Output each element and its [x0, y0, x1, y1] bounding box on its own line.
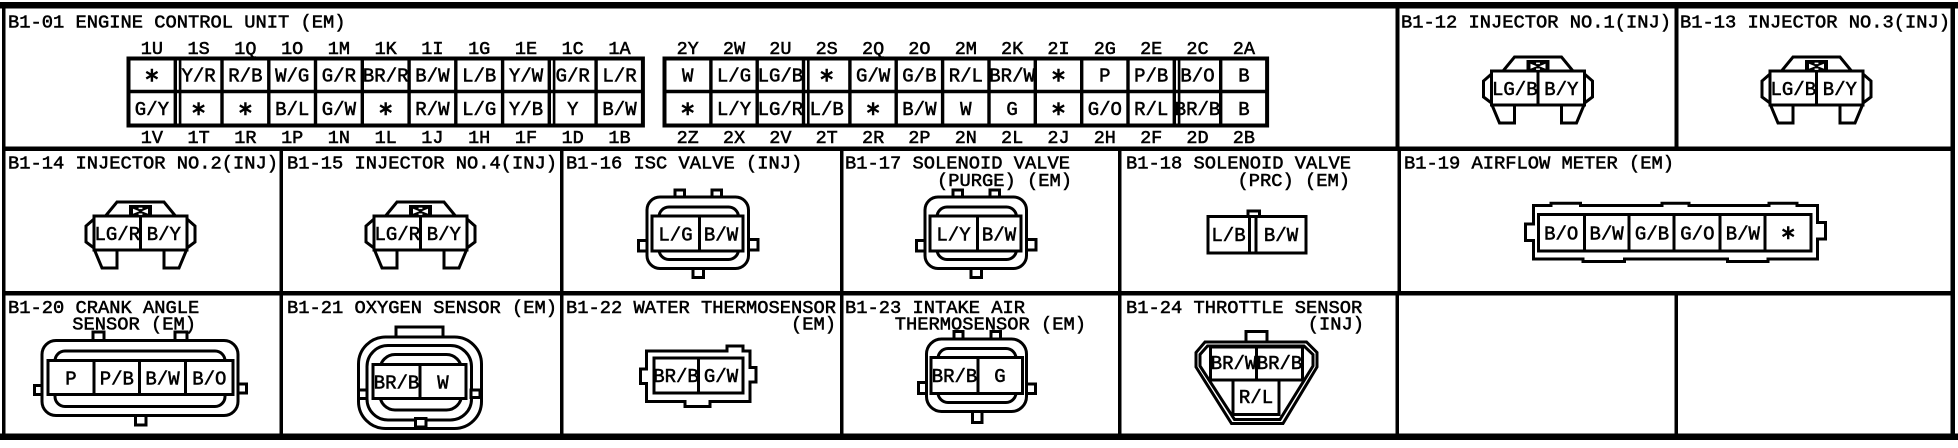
svg-text:P: P — [65, 369, 76, 391]
svg-text:G/Y: G/Y — [135, 99, 170, 121]
svg-text:G/R: G/R — [556, 66, 590, 88]
svg-text:B/W: B/W — [1264, 225, 1299, 247]
svg-text:2J: 2J — [1047, 128, 1069, 149]
svg-text:1T: 1T — [187, 128, 209, 149]
svg-text:B1-01 ENGINE CONTROL UNIT (EM): B1-01 ENGINE CONTROL UNIT (EM) — [8, 12, 346, 34]
svg-text:2C: 2C — [1186, 39, 1208, 60]
svg-text:L/B: L/B — [462, 66, 496, 88]
svg-text:1Q: 1Q — [234, 39, 256, 60]
svg-text:W: W — [960, 99, 972, 121]
svg-text:Y: Y — [567, 99, 579, 121]
svg-text:LG/B: LG/B — [1492, 79, 1538, 101]
svg-text:1U: 1U — [141, 39, 163, 60]
svg-text:W: W — [437, 373, 449, 395]
svg-text:B1-19 AIRFLOW METER (EM): B1-19 AIRFLOW METER (EM) — [1404, 153, 1674, 175]
svg-text:G/O: G/O — [1680, 224, 1714, 246]
svg-text:B/W: B/W — [704, 225, 739, 247]
svg-text:2U: 2U — [769, 39, 791, 60]
svg-text:G/R: G/R — [322, 66, 356, 88]
svg-text:2A: 2A — [1233, 39, 1256, 60]
svg-text:B/W: B/W — [415, 66, 450, 88]
svg-text:B1-13 INJECTOR NO.3(INJ): B1-13 INJECTOR NO.3(INJ) — [1680, 12, 1950, 34]
svg-text:1O: 1O — [281, 39, 303, 60]
svg-text:R/L: R/L — [1239, 387, 1273, 409]
svg-text:G/B: G/B — [1635, 224, 1669, 246]
svg-text:2D: 2D — [1186, 128, 1208, 149]
svg-text:B/Y: B/Y — [1823, 79, 1858, 101]
svg-text:R/L: R/L — [949, 66, 983, 88]
svg-text:LG/R: LG/R — [758, 99, 804, 121]
svg-text:B/W: B/W — [1589, 224, 1624, 246]
svg-text:Y/W: Y/W — [509, 66, 544, 88]
svg-text:BR/B: BR/B — [653, 366, 699, 388]
svg-text:B/W: B/W — [982, 225, 1017, 247]
svg-text:L/Y: L/Y — [717, 99, 752, 121]
svg-text:B: B — [1238, 66, 1249, 88]
svg-text:2S: 2S — [816, 39, 838, 60]
svg-text:BR/B: BR/B — [374, 373, 420, 395]
svg-text:R/W: R/W — [415, 99, 450, 121]
svg-text:1V: 1V — [141, 128, 163, 149]
svg-text:G: G — [994, 366, 1005, 388]
svg-text:P/B: P/B — [1134, 66, 1168, 88]
svg-text:2P: 2P — [908, 128, 930, 149]
svg-text:1F: 1F — [515, 128, 537, 149]
svg-text:1H: 1H — [468, 128, 490, 149]
svg-text:G/W: G/W — [856, 66, 891, 88]
svg-text:LG/R: LG/R — [94, 224, 140, 246]
svg-text:P/B: P/B — [100, 369, 134, 391]
svg-text:B1-21 OXYGEN SENSOR (EM): B1-21 OXYGEN SENSOR (EM) — [287, 297, 557, 319]
svg-text:BR/W: BR/W — [1211, 353, 1257, 375]
svg-text:2B: 2B — [1233, 128, 1255, 149]
svg-text:BR/B: BR/B — [1175, 99, 1221, 121]
svg-text:BR/B: BR/B — [932, 366, 978, 388]
svg-text:1S: 1S — [187, 39, 209, 60]
svg-text:1M: 1M — [328, 39, 350, 60]
svg-text:B/W: B/W — [602, 99, 637, 121]
svg-text:2M: 2M — [955, 39, 977, 60]
svg-text:2L: 2L — [1001, 128, 1023, 149]
svg-text:2O: 2O — [908, 39, 930, 60]
svg-text:LG/R: LG/R — [374, 224, 420, 246]
svg-text:2R: 2R — [862, 128, 884, 149]
svg-text:1D: 1D — [562, 128, 584, 149]
svg-text:G/W: G/W — [704, 366, 739, 388]
svg-text:1A: 1A — [608, 39, 631, 60]
svg-text:2G: 2G — [1094, 39, 1116, 60]
svg-text:1G: 1G — [468, 39, 490, 60]
svg-text:G: G — [1006, 99, 1017, 121]
svg-text:2X: 2X — [723, 128, 745, 149]
svg-text:Y/R: Y/R — [181, 66, 215, 88]
svg-text:LG/B: LG/B — [758, 66, 804, 88]
svg-text:2E: 2E — [1140, 39, 1162, 60]
svg-text:W: W — [682, 66, 694, 88]
svg-text:(EM): (EM) — [791, 314, 836, 336]
svg-text:2W: 2W — [723, 39, 746, 60]
svg-text:BR/R: BR/R — [363, 66, 409, 88]
svg-text:G/O: G/O — [1088, 99, 1122, 121]
svg-text:G/B: G/B — [902, 66, 936, 88]
svg-text:1P: 1P — [281, 128, 303, 149]
svg-text:LG/B: LG/B — [1770, 79, 1816, 101]
svg-text:2Y: 2Y — [677, 39, 699, 60]
svg-text:BR/B: BR/B — [1257, 353, 1303, 375]
svg-text:1N: 1N — [328, 128, 350, 149]
svg-text:P: P — [1099, 66, 1110, 88]
svg-text:B1-15 INJECTOR NO.4(INJ): B1-15 INJECTOR NO.4(INJ) — [287, 153, 557, 175]
svg-text:1E: 1E — [515, 39, 537, 60]
svg-text:W/G: W/G — [275, 66, 309, 88]
svg-text:L/G: L/G — [717, 66, 751, 88]
svg-text:2Z: 2Z — [677, 128, 699, 149]
svg-text:(INJ): (INJ) — [1308, 314, 1364, 336]
svg-text:BR/W: BR/W — [989, 66, 1035, 88]
svg-text:L/G: L/G — [462, 99, 496, 121]
svg-text:B/Y: B/Y — [1544, 79, 1579, 101]
svg-text:B1-12 INJECTOR NO.1(INJ): B1-12 INJECTOR NO.1(INJ) — [1401, 12, 1671, 34]
svg-text:L/B: L/B — [1211, 225, 1245, 247]
svg-text:R/B: R/B — [228, 66, 262, 88]
svg-text:1J: 1J — [421, 128, 443, 149]
svg-text:L/B: L/B — [810, 99, 844, 121]
svg-text:1C: 1C — [562, 39, 584, 60]
svg-text:L/G: L/G — [658, 225, 692, 247]
svg-text:2V: 2V — [769, 128, 791, 149]
svg-text:2F: 2F — [1140, 128, 1162, 149]
svg-text:2K: 2K — [1001, 39, 1024, 60]
svg-text:G/W: G/W — [322, 99, 357, 121]
svg-text:B1-16 ISC VALVE (INJ): B1-16 ISC VALVE (INJ) — [566, 153, 802, 175]
svg-text:1B: 1B — [608, 128, 630, 149]
svg-text:R/L: R/L — [1134, 99, 1168, 121]
svg-text:2T: 2T — [816, 128, 838, 149]
svg-text:B/O: B/O — [192, 369, 226, 391]
svg-text:B/W: B/W — [145, 369, 180, 391]
svg-text:L/Y: L/Y — [936, 225, 971, 247]
svg-text:2Q: 2Q — [862, 39, 884, 60]
svg-text:1R: 1R — [234, 128, 256, 149]
svg-text:B/W: B/W — [1726, 224, 1761, 246]
svg-text:B/W: B/W — [902, 99, 937, 121]
svg-text:1L: 1L — [375, 128, 397, 149]
svg-text:1K: 1K — [375, 39, 398, 60]
svg-text:Y/B: Y/B — [509, 99, 543, 121]
svg-text:1I: 1I — [421, 39, 443, 60]
svg-text:2I: 2I — [1047, 39, 1069, 60]
svg-text:2N: 2N — [955, 128, 977, 149]
svg-text:L/R: L/R — [602, 66, 636, 88]
svg-text:B/Y: B/Y — [147, 224, 182, 246]
svg-text:2H: 2H — [1094, 128, 1116, 149]
svg-text:B1-14 INJECTOR NO.2(INJ): B1-14 INJECTOR NO.2(INJ) — [8, 153, 278, 175]
svg-text:B/O: B/O — [1180, 66, 1214, 88]
svg-text:B/O: B/O — [1544, 224, 1578, 246]
svg-text:(PRC) (EM): (PRC) (EM) — [1237, 170, 1350, 192]
svg-text:B/L: B/L — [275, 99, 309, 121]
svg-text:B: B — [1238, 99, 1249, 121]
svg-text:B/Y: B/Y — [427, 224, 462, 246]
